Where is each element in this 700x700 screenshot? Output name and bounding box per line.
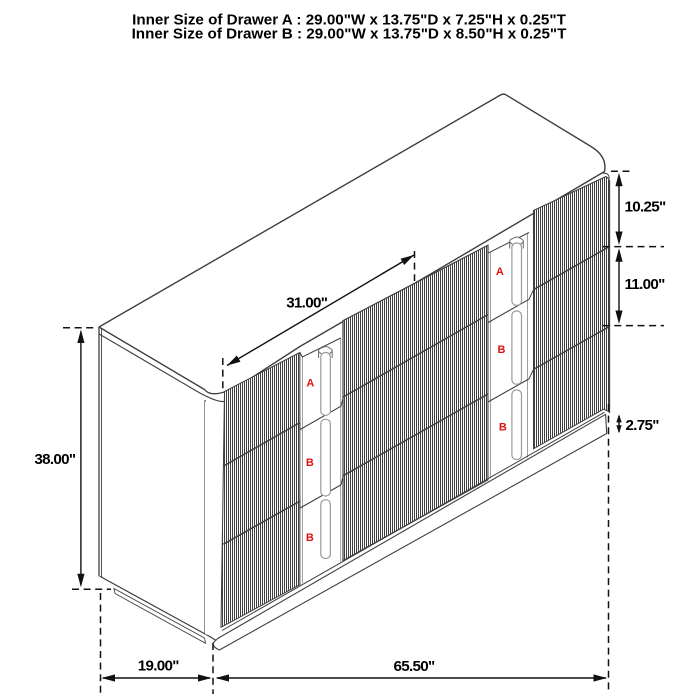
svg-text:31.00": 31.00": [286, 295, 328, 312]
svg-text:10.25": 10.25": [625, 198, 667, 215]
svg-text:Inner Size of Drawer B : 29.00: Inner Size of Drawer B : 29.00"W x 13.75…: [132, 26, 568, 43]
svg-text:A: A: [306, 377, 314, 389]
svg-text:2.75": 2.75": [626, 417, 660, 434]
svg-text:38.00": 38.00": [34, 451, 76, 468]
svg-text:B: B: [499, 422, 507, 434]
svg-text:B: B: [306, 457, 314, 469]
svg-text:11.00": 11.00": [625, 276, 666, 293]
svg-text:B: B: [498, 344, 506, 356]
svg-text:A: A: [496, 266, 504, 278]
svg-text:65.50": 65.50": [393, 658, 435, 675]
svg-text:B: B: [306, 532, 314, 544]
svg-text:19.00": 19.00": [138, 658, 180, 675]
